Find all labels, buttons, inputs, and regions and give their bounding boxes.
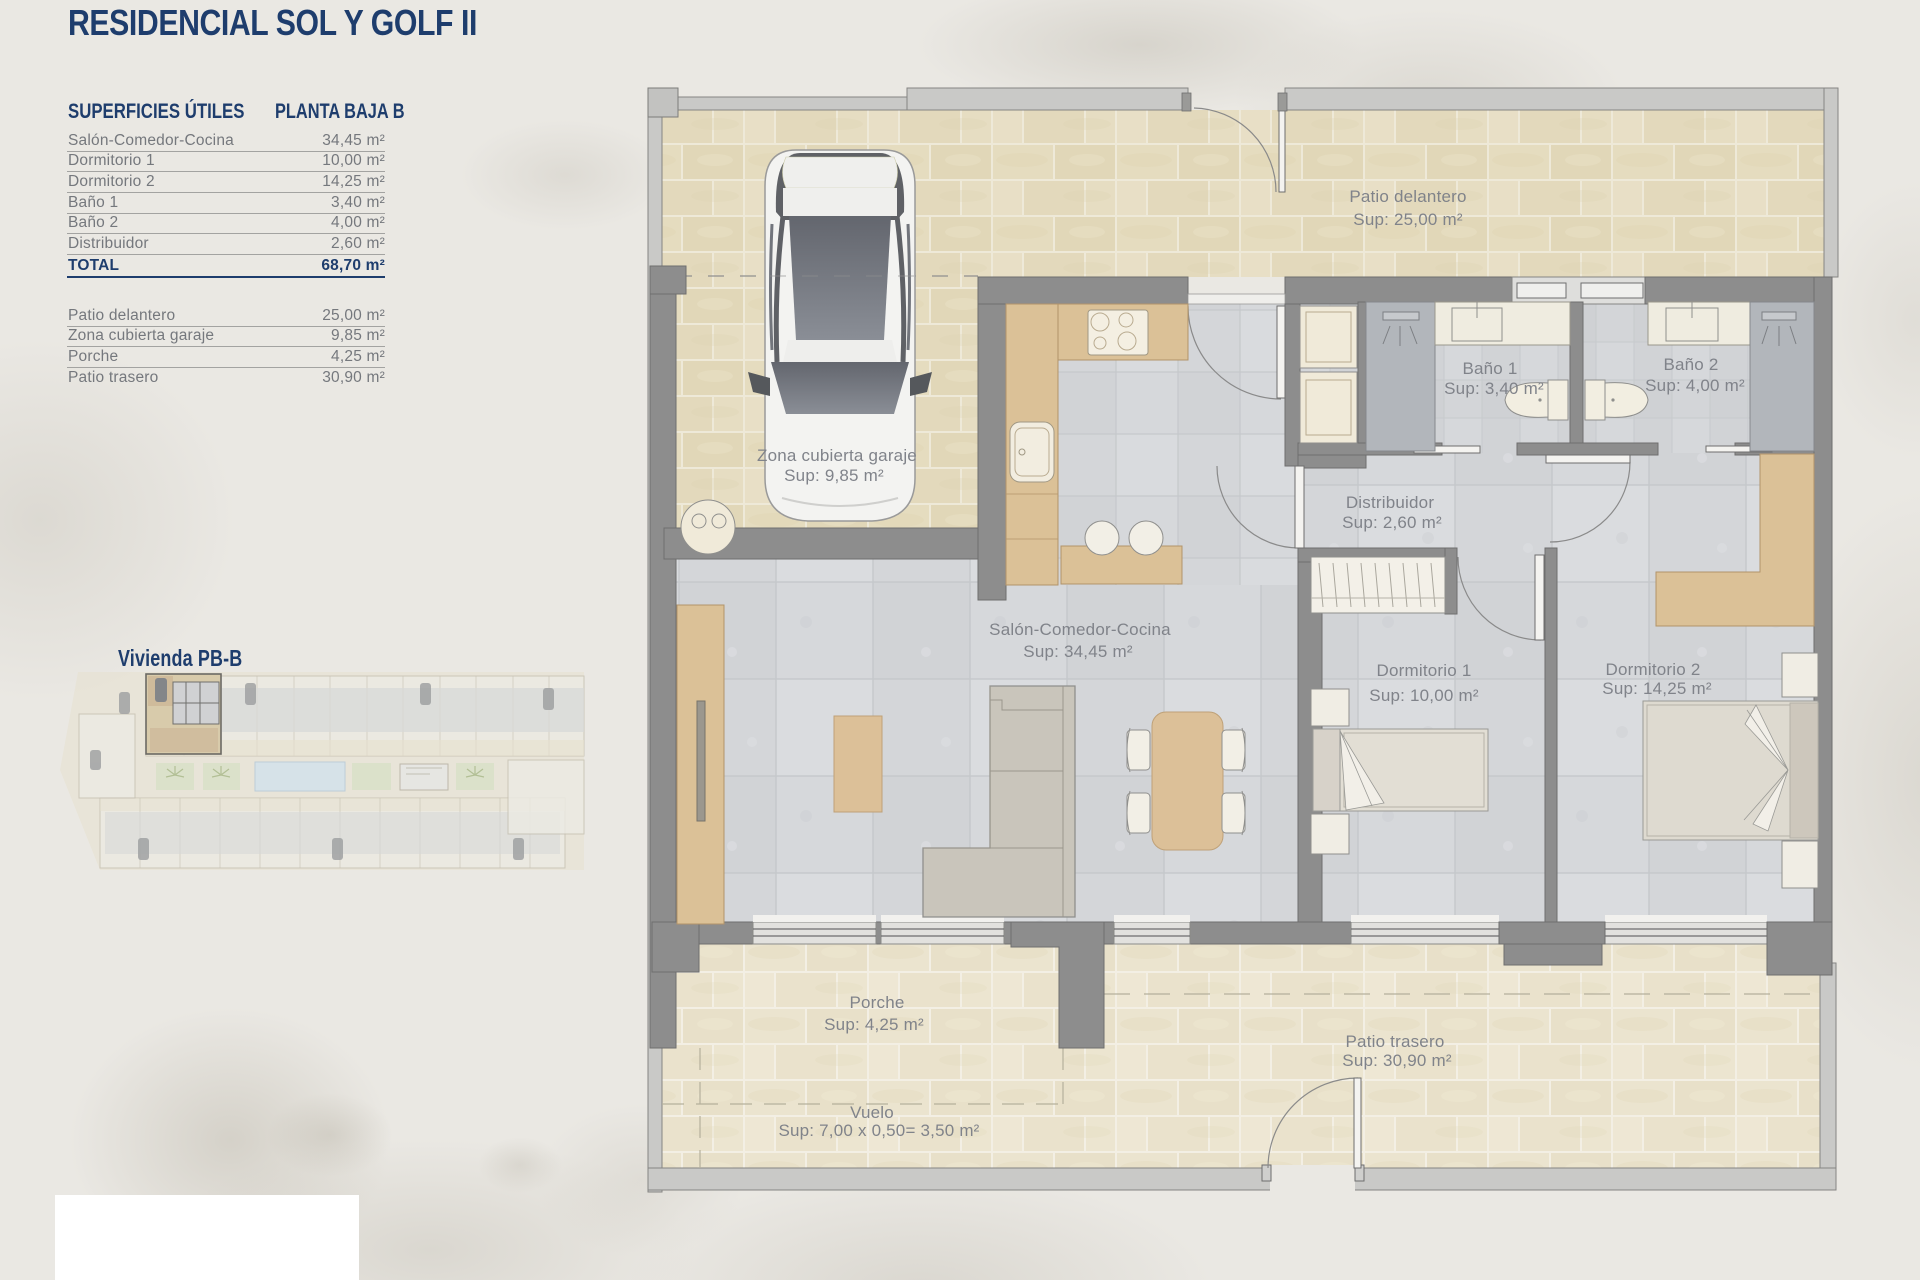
svg-text:Baño 2: Baño 2 <box>1663 355 1718 374</box>
svg-text:Patio delantero: Patio delantero <box>1349 187 1466 206</box>
svg-text:Sup: 3,40 m²: Sup: 3,40 m² <box>1444 379 1544 398</box>
svg-text:Sup: 4,00 m²: Sup: 4,00 m² <box>1645 376 1745 395</box>
svg-text:Salón-Comedor-Cocina: Salón-Comedor-Cocina <box>989 620 1171 639</box>
svg-text:Sup: 14,25 m²: Sup: 14,25 m² <box>1602 679 1712 698</box>
svg-text:Sup: 25,00 m²: Sup: 25,00 m² <box>1353 210 1463 229</box>
svg-text:Dormitorio 1: Dormitorio 1 <box>1377 661 1472 680</box>
svg-text:Zona cubierta garaje: Zona cubierta garaje <box>757 446 917 465</box>
svg-text:Dormitorio 2: Dormitorio 2 <box>1606 660 1701 679</box>
svg-text:Vuelo: Vuelo <box>850 1103 894 1122</box>
svg-text:Sup: 4,25 m²: Sup: 4,25 m² <box>824 1015 924 1034</box>
svg-text:Sup: 34,45 m²: Sup: 34,45 m² <box>1023 642 1133 661</box>
svg-text:Sup: 10,00 m²: Sup: 10,00 m² <box>1369 686 1479 705</box>
svg-text:Sup: 9,85 m²: Sup: 9,85 m² <box>784 466 884 485</box>
svg-text:Patio trasero: Patio trasero <box>1346 1032 1445 1051</box>
svg-text:Sup: 7,00 x 0,50= 3,50 m²: Sup: 7,00 x 0,50= 3,50 m² <box>778 1121 979 1140</box>
svg-text:Sup: 2,60 m²: Sup: 2,60 m² <box>1342 513 1442 532</box>
svg-text:Baño 1: Baño 1 <box>1462 359 1517 378</box>
svg-text:Sup: 30,90 m²: Sup: 30,90 m² <box>1342 1051 1452 1070</box>
svg-text:Porche: Porche <box>849 993 904 1012</box>
svg-text:Distribuidor: Distribuidor <box>1346 493 1435 512</box>
